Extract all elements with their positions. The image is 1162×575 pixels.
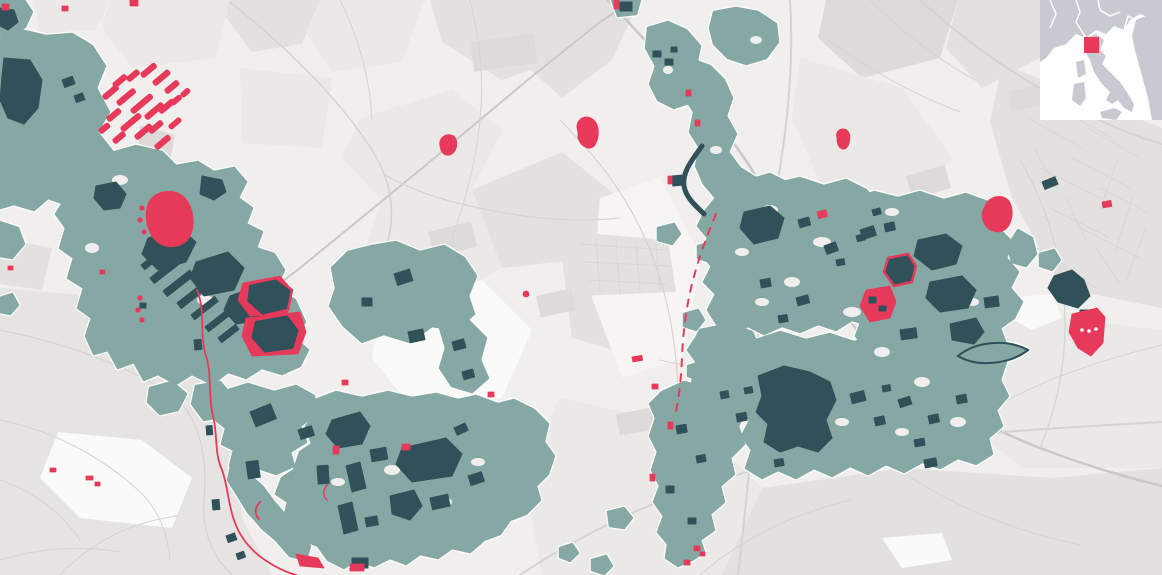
locator-marker-icon: [1084, 37, 1099, 53]
map-viewport[interactable]: [0, 0, 1162, 575]
inset-locator-map: [1040, 0, 1162, 120]
map-canvas[interactable]: [0, 0, 1162, 575]
